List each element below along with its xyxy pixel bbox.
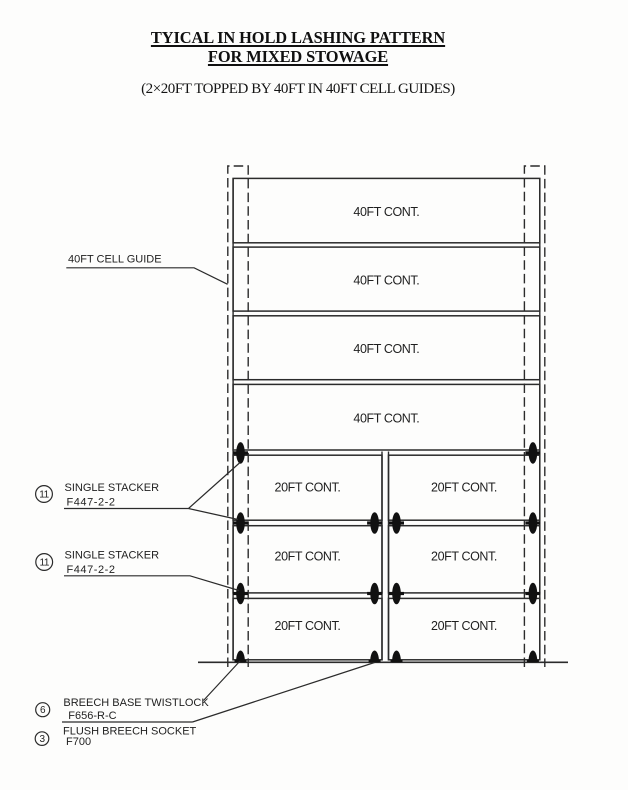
svg-text:20FT CONT.: 20FT CONT.: [275, 550, 341, 564]
svg-text:BREECH BASE TWISTLOCK: BREECH BASE TWISTLOCK: [63, 697, 209, 709]
svg-text:11: 11: [39, 490, 49, 501]
svg-text:20FT CONT.: 20FT CONT.: [275, 619, 341, 633]
svg-text:20FT CONT.: 20FT CONT.: [431, 481, 497, 495]
svg-text:F700: F700: [66, 736, 91, 748]
svg-text:20FT CONT.: 20FT CONT.: [431, 619, 497, 633]
svg-text:3: 3: [39, 734, 45, 745]
svg-text:40FT CONT.: 40FT CONT.: [353, 205, 419, 219]
svg-text:F447-2-2: F447-2-2: [67, 564, 116, 576]
svg-text:40FT CONT.: 40FT CONT.: [353, 412, 419, 426]
svg-text:F656-R-C: F656-R-C: [68, 710, 116, 722]
svg-text:6: 6: [40, 705, 46, 716]
svg-text:40FT CONT.: 40FT CONT.: [353, 342, 419, 356]
svg-text:40FT CELL GUIDE: 40FT CELL GUIDE: [68, 254, 162, 266]
svg-text:SINGLE STACKER: SINGLE STACKER: [65, 482, 160, 494]
svg-text:20FT CONT.: 20FT CONT.: [275, 481, 341, 495]
svg-text:F447-2-2: F447-2-2: [67, 497, 116, 509]
svg-text:SINGLE STACKER: SINGLE STACKER: [65, 549, 160, 561]
svg-text:11: 11: [40, 558, 50, 569]
svg-text:40FT CONT.: 40FT CONT.: [353, 273, 419, 287]
svg-text:20FT CONT.: 20FT CONT.: [431, 550, 497, 564]
